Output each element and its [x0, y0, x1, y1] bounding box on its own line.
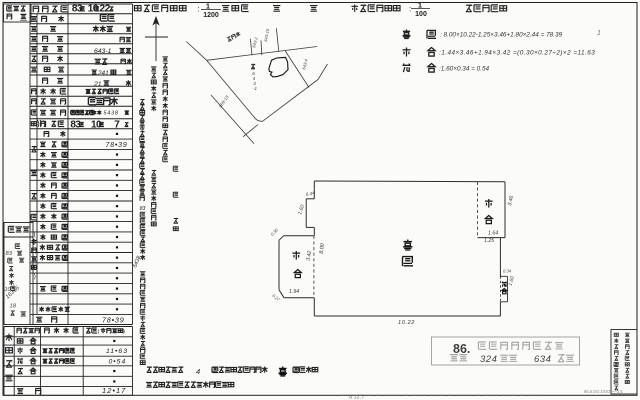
svg-text:86.: 86.	[453, 342, 470, 356]
svg-text:83: 83	[140, 206, 146, 212]
svg-text:86.6.DG.DOO — 0.5: 86.6.DG.DOO — 0.5	[584, 389, 623, 394]
svg-text:-1: -1	[253, 86, 257, 91]
svg-text:): )	[123, 329, 125, 335]
svg-text:): )	[34, 274, 36, 280]
svg-text:100: 100	[415, 11, 427, 18]
svg-text:5438: 5438	[104, 111, 119, 117]
svg-text:1200: 1200	[203, 12, 219, 19]
svg-text:1: 1	[206, 2, 210, 11]
svg-text:: 8.00×10.22-1.25×3.46+1.80×2.: : 8.00×10.22-1.25×3.46+1.80×2.44 = 78.39	[440, 32, 563, 39]
svg-text:4: 4	[196, 367, 200, 376]
svg-text:1: 1	[597, 30, 601, 37]
svg-text:241: 241	[97, 70, 109, 77]
svg-text:1.94: 1.94	[289, 289, 299, 295]
svg-text:643-1: 643-1	[94, 48, 112, 55]
svg-text:11•63: 11•63	[106, 348, 128, 355]
svg-text:18: 18	[10, 304, 17, 310]
svg-text::1.44×3.46+1.94×3.42 =(0.30×0.: :1.44×3.46+1.94×3.42 =(0.30×0.27÷2)×2 =1…	[439, 50, 595, 57]
svg-text:1: 1	[418, 1, 422, 10]
svg-text:83: 83	[72, 3, 83, 14]
svg-text:21: 21	[93, 81, 102, 88]
svg-text:10: 10	[91, 119, 102, 130]
svg-text:78•39: 78•39	[106, 142, 128, 149]
svg-text::: :	[409, 5, 411, 14]
svg-text:a 12.7: a 12.7	[349, 395, 365, 400]
svg-text:22: 22	[99, 3, 110, 14]
svg-text:1.64: 1.64	[488, 231, 498, 237]
svg-text:10.22: 10.22	[398, 320, 415, 326]
svg-text:78•39: 78•39	[102, 315, 125, 324]
svg-text::: :	[198, 5, 200, 14]
svg-text:0.34: 0.34	[503, 269, 512, 274]
svg-text:83: 83	[6, 251, 13, 257]
svg-text::1.60×0.34 = 0.54: :1.60×0.34 = 0.54	[439, 66, 490, 73]
svg-text:8.00: 8.00	[319, 243, 326, 254]
svg-text:12•17: 12•17	[102, 386, 126, 395]
svg-text:0•54: 0•54	[109, 358, 127, 365]
svg-text:1.25: 1.25	[484, 238, 494, 244]
svg-text:(: (	[34, 232, 36, 238]
svg-text:324: 324	[480, 354, 497, 365]
svg-text:(: (	[98, 329, 100, 335]
svg-text:634: 634	[534, 354, 551, 365]
